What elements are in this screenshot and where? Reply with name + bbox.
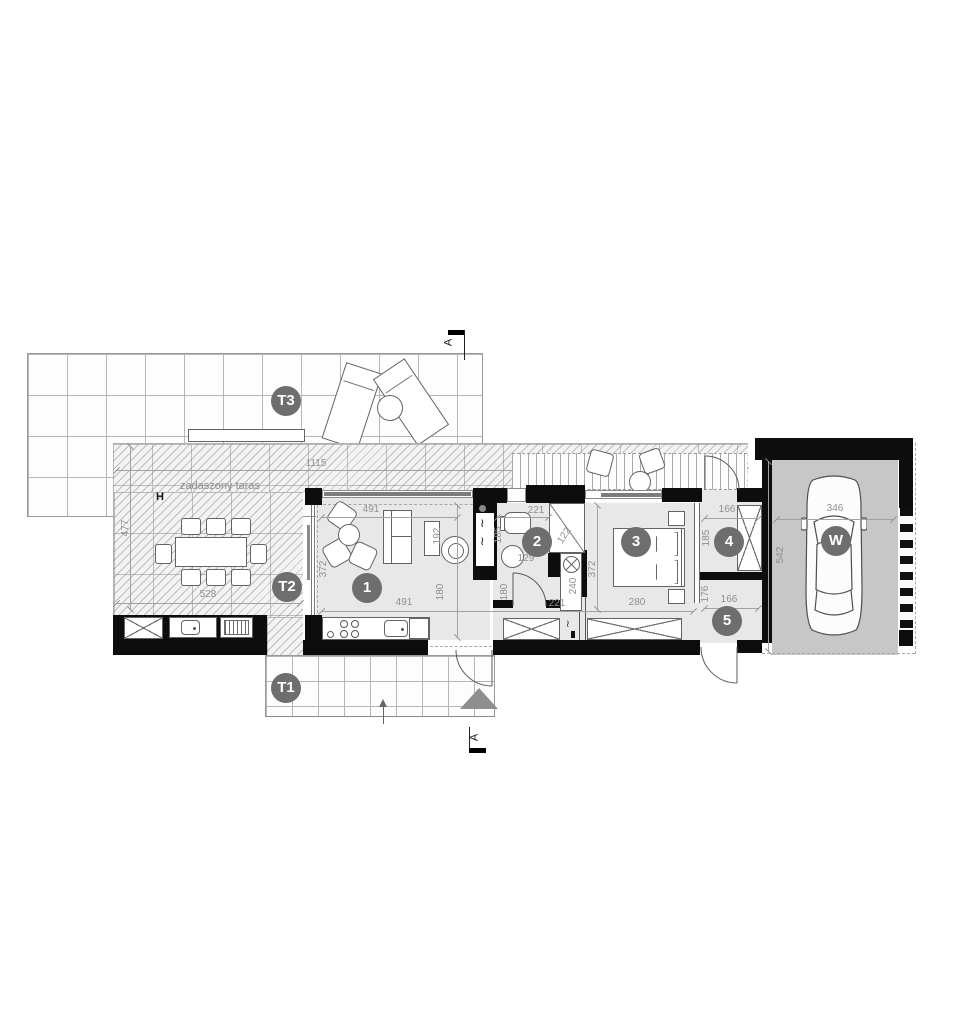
badge-terrace-t2: T2 (272, 572, 302, 602)
bedroom-window-bar (601, 493, 661, 497)
wall-post-nw (305, 488, 322, 505)
badge-room-storage4: 4 (714, 527, 744, 557)
dining-chair (181, 518, 201, 535)
roof-dash-carport-right (915, 443, 916, 654)
dim-carport-depth: 542 (776, 538, 786, 572)
hydrant-symbol: H (156, 491, 164, 503)
dim-line-bottom-chain (322, 611, 693, 612)
car-top-view (801, 470, 867, 642)
dim-bath-low: 180 (500, 575, 510, 609)
wall-bottom-storage (737, 640, 762, 653)
dining-chair (206, 518, 226, 535)
stove-burner (340, 620, 348, 628)
coffee-table (338, 524, 360, 546)
stove-burner (351, 630, 359, 638)
outdoor-storage-box (124, 617, 163, 639)
nightstand (668, 511, 685, 526)
wall-post-storage (737, 488, 762, 502)
wall-carport-se (899, 630, 913, 646)
dining-chair (206, 569, 226, 586)
living-glass-panel (307, 525, 310, 580)
bedroom-door-frame (585, 597, 586, 640)
wall-carport-top (755, 438, 913, 460)
bath-window (507, 488, 526, 502)
badge-room-living: 1 (352, 573, 382, 603)
fridge (409, 618, 429, 639)
door-stop (571, 631, 575, 638)
dining-chair (231, 518, 251, 535)
wall-bottom-mid (493, 640, 700, 655)
section-letter-top: A (444, 326, 455, 360)
dim-terrace-width: 1115 (299, 459, 333, 469)
stove-burner (340, 630, 348, 638)
dim-terrace-depth: 477 (121, 511, 131, 545)
dim-bath-left: 185 (494, 518, 504, 552)
dim-bath-top: 221 (519, 506, 553, 516)
sofa-line (391, 536, 412, 537)
dim-line-s4 (705, 518, 758, 519)
wall-bottom-west (303, 640, 428, 655)
wall-post-sw (305, 615, 322, 640)
column-dot (479, 505, 486, 512)
section-letter-bottom: A (470, 721, 481, 755)
badge-carport: W (821, 526, 851, 556)
badge-room-storage5: 5 (712, 606, 742, 636)
storage4-door (705, 456, 739, 490)
dim-living-sofa: 192 (433, 519, 443, 553)
wall-house-east (762, 455, 772, 643)
dim-living-left: 372 (319, 552, 329, 586)
roof-dash-carport-bottom (762, 653, 915, 654)
dim-line-terrace-table (117, 603, 300, 604)
dim-s4-width: 166 (710, 505, 744, 515)
dining-chair (155, 544, 172, 564)
dim-line-carport-d (768, 462, 769, 652)
badge-terrace-t3: T3 (271, 386, 301, 416)
dining-chair (181, 569, 201, 586)
dim-line-living-top (322, 517, 457, 518)
north-arrow-head (379, 699, 387, 707)
dim-line-carport-w (777, 519, 893, 520)
badge-room-bath: 2 (522, 527, 552, 557)
wall-bedroom-top (662, 488, 702, 502)
dim-bedroom-left: 372 (588, 552, 598, 586)
dim-carport-width: 346 (818, 504, 852, 514)
covered-terrace-strip (267, 617, 303, 657)
carport-louver-wall (900, 508, 913, 633)
bed-headboard-line (681, 528, 682, 587)
dim-living-mid: 180 (436, 575, 446, 609)
dim-bath-niche: 240 (569, 569, 579, 603)
vent-flue-icon: ≀ (480, 535, 485, 547)
bathroom-door (513, 573, 546, 606)
dim-s5-width: 166 (712, 595, 746, 605)
wall-bath-top (526, 485, 585, 503)
storage5-door (701, 647, 737, 683)
dining-table (175, 537, 247, 567)
badge-terrace-t1: T1 (271, 673, 301, 703)
outdoor-sink (181, 620, 200, 635)
dim-line-bath-top (498, 517, 548, 518)
badge-room-bedroom: 3 (621, 527, 651, 557)
living-glass-door (311, 505, 315, 615)
nightstand (668, 589, 685, 604)
wardrobe (587, 618, 682, 640)
entrance-marker-triangle (460, 688, 498, 709)
kitchen-knob (327, 631, 334, 638)
wardrobe (503, 618, 560, 640)
stove-burner (351, 620, 359, 628)
dining-chair (231, 569, 251, 586)
dim-terrace-table: 528 (191, 590, 225, 600)
kitchen-sink (384, 620, 408, 637)
dim-living-top: 491 (354, 505, 388, 515)
entrance-door (456, 650, 492, 686)
entrance-threshold (430, 646, 492, 647)
dim-s4-height: 185 (702, 521, 712, 555)
north-arrow (383, 704, 384, 724)
dim-living-bottom: 491 (387, 598, 421, 608)
vent-shaft (476, 513, 494, 566)
vent-flue-icon: ≀ (566, 620, 570, 630)
grill-icon (224, 620, 249, 635)
covered-terrace-label: zadaszony taras (160, 480, 280, 492)
wall-shaft-top (473, 488, 507, 503)
vent-flue-icon: ≀ (480, 517, 485, 529)
sofa (383, 510, 412, 564)
living-window-bar (324, 492, 471, 496)
wall-carport-ne (899, 460, 913, 508)
egg-chair (441, 536, 469, 564)
section-marker-top (464, 330, 465, 360)
dim-line-living-v (457, 506, 458, 638)
sofa-line (391, 510, 392, 564)
terrace-t1-step (265, 716, 495, 727)
dim-bedroom-bottom: 280 (620, 598, 654, 608)
dining-chair (250, 544, 267, 564)
floor-plan-canvas: zadaszony taras H 1115 477 528 (0, 0, 956, 1014)
planter (188, 429, 305, 442)
side-table (377, 395, 403, 421)
